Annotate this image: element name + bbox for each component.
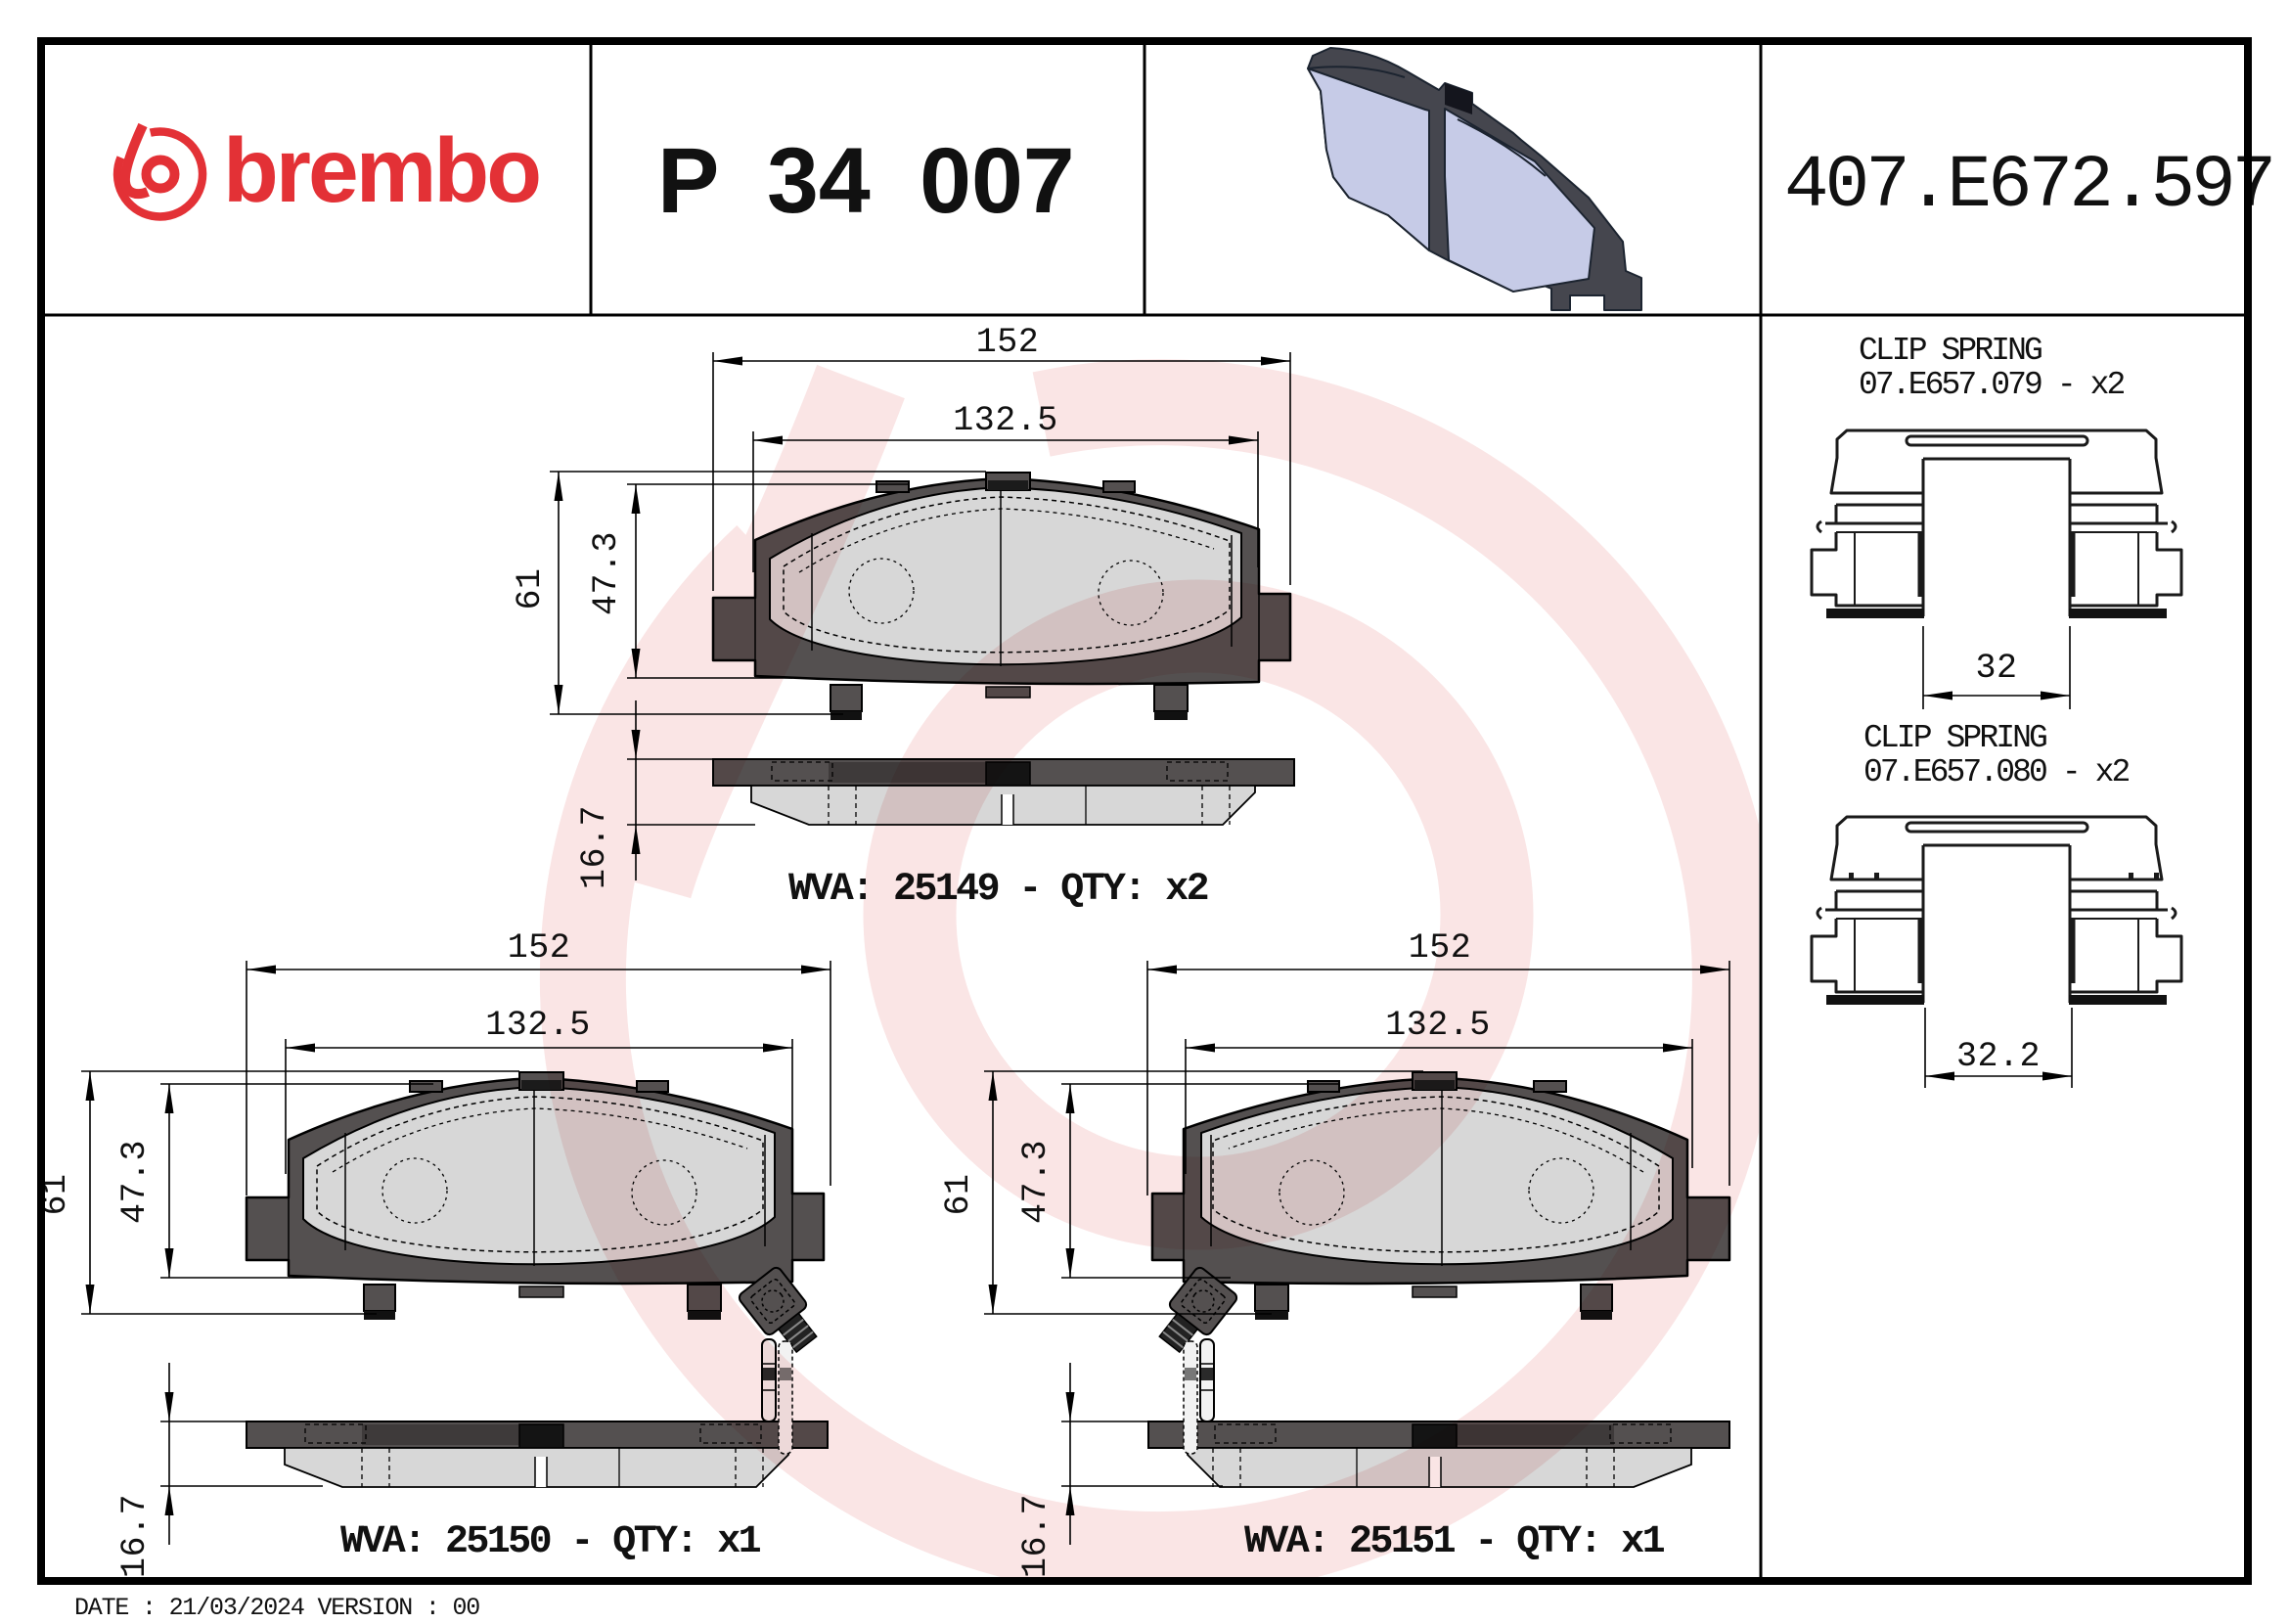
svg-text:61: 61 (511, 567, 550, 609)
svg-text:16.7: 16.7 (115, 1494, 155, 1578)
svg-text:32: 32 (1975, 649, 2017, 688)
svg-text:07.E657.080 - x2: 07.E657.080 - x2 (1863, 754, 2130, 790)
svg-text:61: 61 (939, 1173, 978, 1215)
svg-text:407.E672.597: 407.E672.597 (1784, 144, 2272, 228)
svg-text:152: 152 (976, 323, 1040, 362)
svg-text:brembo: brembo (223, 119, 539, 221)
svg-text:DATE : 21/03/2024 VERSION : 00: DATE : 21/03/2024 VERSION : 00 (74, 1594, 479, 1619)
svg-text:WVA: 25149 - QTY: x2: WVA: 25149 - QTY: x2 (788, 868, 1208, 912)
svg-text:47.3: 47.3 (587, 531, 626, 615)
svg-text:P 34 007: P 34 007 (657, 129, 1075, 233)
svg-text:CLIP SPRING: CLIP SPRING (1859, 333, 2042, 369)
svg-text:32.2: 32.2 (1956, 1037, 2041, 1076)
svg-text:47.3: 47.3 (115, 1140, 155, 1224)
svg-text:07.E657.079 - x2: 07.E657.079 - x2 (1859, 367, 2125, 403)
svg-text:WVA: 25150 - QTY: x1: WVA: 25150 - QTY: x1 (340, 1520, 761, 1564)
svg-text:CLIP SPRING: CLIP SPRING (1863, 720, 2046, 756)
